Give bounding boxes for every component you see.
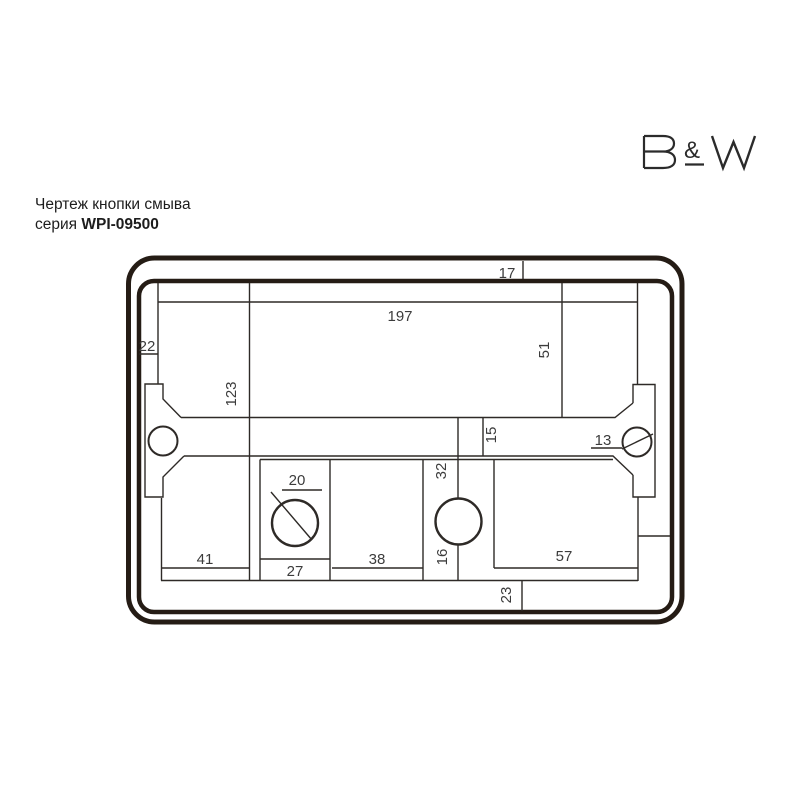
- drawing-circles: [149, 427, 652, 547]
- dim-22: 22: [139, 338, 156, 355]
- dim-197: 197: [387, 308, 412, 325]
- dim-51: 51: [536, 342, 553, 359]
- dim-123: 123: [223, 381, 240, 406]
- dim-13: 13: [595, 432, 612, 449]
- left-mounting-hole: [149, 427, 178, 456]
- dim-57: 57: [556, 548, 573, 565]
- dim-23: 23: [498, 587, 515, 604]
- flush-button-technical-drawing: 17 197 22 51 123 15 13 20 32 41 27 38 16…: [0, 0, 800, 800]
- dim-16: 16: [434, 549, 451, 566]
- dim-27: 27: [287, 563, 304, 580]
- top-button-lines: [158, 283, 638, 581]
- dim-17: 17: [499, 265, 516, 282]
- dimension-labels: 17 197 22 51 123 15 13 20 32 41 27 38 16…: [139, 265, 612, 603]
- small-button-circle-20: [272, 500, 318, 546]
- inner-plate-outline: [139, 281, 672, 612]
- dim-20: 20: [289, 472, 306, 489]
- center-button-circle-32: [436, 499, 482, 545]
- dim-15: 15: [483, 427, 500, 444]
- dim-32: 32: [433, 463, 450, 480]
- dim-ticks-top: [139, 261, 523, 354]
- lower-region-lines: [161, 460, 638, 612]
- right-tab-outline: [633, 385, 670, 582]
- dim-leader-20: [271, 490, 322, 540]
- dim-38: 38: [369, 551, 386, 568]
- dim-41: 41: [197, 551, 214, 568]
